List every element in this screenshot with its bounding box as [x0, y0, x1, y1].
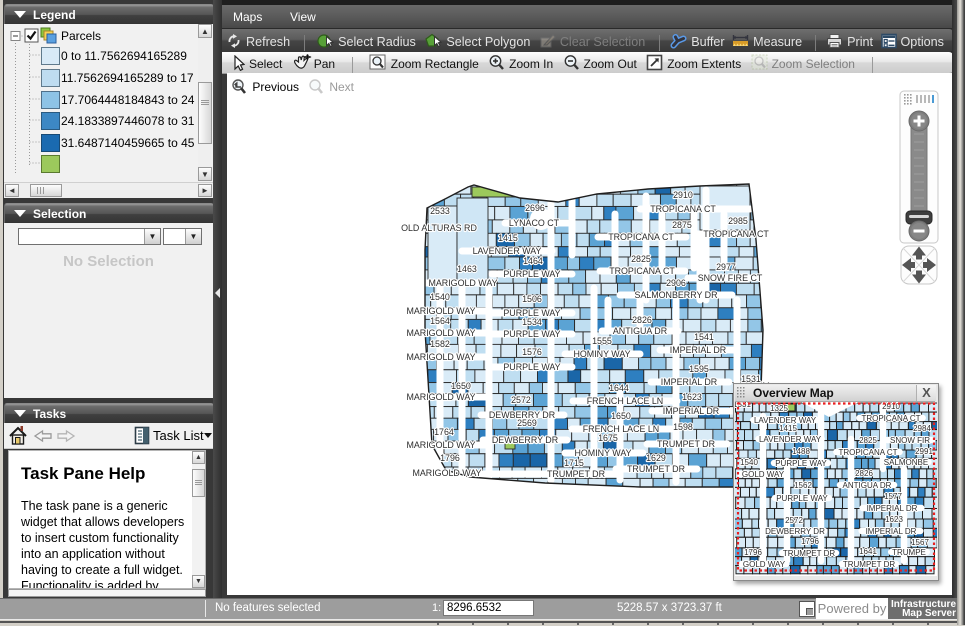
svg-text:IMPERIAL DR: IMPERIAL DR: [670, 345, 726, 355]
svg-text:1540: 1540: [740, 458, 758, 467]
svg-text:DEWBERRY DR: DEWBERRY DR: [765, 527, 825, 536]
svg-text:LYNACO CT: LYNACO CT: [509, 218, 560, 228]
svg-text:1796: 1796: [440, 453, 460, 463]
svg-text:TROPICANA CT: TROPICANA CT: [861, 414, 920, 423]
svg-text:2569: 2569: [517, 418, 537, 428]
svg-text:1564: 1564: [430, 316, 450, 326]
svg-text:ANTIGUA DR: ANTIGUA DR: [613, 326, 667, 336]
svg-text:MARIGOLD WAY: MARIGOLD WAY: [412, 468, 481, 478]
svg-text:HOMINY WAY: HOMINY WAY: [574, 448, 631, 458]
svg-text:1562: 1562: [794, 481, 812, 490]
svg-text:TRUMPET DR: TRUMPET DR: [843, 560, 896, 569]
svg-text:LAVENDER WAY: LAVENDER WAY: [473, 246, 542, 256]
svg-text:1488: 1488: [792, 447, 810, 456]
svg-text:1675: 1675: [598, 433, 618, 443]
svg-text:FRENCH LACE LN: FRENCH LACE LN: [583, 424, 659, 434]
svg-text:Task List: Task List: [153, 428, 204, 443]
svg-text:1540: 1540: [430, 292, 450, 302]
svg-text:LAVENDER WAY: LAVENDER WAY: [759, 435, 822, 444]
svg-text:2825: 2825: [859, 436, 877, 445]
svg-text:TROPICANA CT: TROPICANA CT: [703, 229, 769, 239]
svg-text:HOMINY WAY: HOMINY WAY: [573, 349, 630, 359]
svg-text:SNOW FIR: SNOW FIR: [890, 436, 930, 445]
svg-text:2825: 2825: [631, 254, 651, 264]
svg-text:2906: 2906: [666, 278, 686, 288]
svg-text:GOLD WAY: GOLD WAY: [743, 560, 786, 569]
svg-text:2826: 2826: [632, 315, 652, 325]
svg-text:2875: 2875: [672, 220, 692, 230]
svg-text:2985: 2985: [728, 216, 748, 226]
svg-text:1715: 1715: [564, 458, 584, 468]
svg-text:1650: 1650: [451, 381, 471, 391]
svg-text:1595: 1595: [689, 364, 709, 374]
svg-text:PURPLE WAY: PURPLE WAY: [503, 269, 560, 279]
svg-text:2533: 2533: [430, 206, 450, 216]
svg-text:2977: 2977: [716, 262, 736, 272]
svg-text:2984: 2984: [913, 424, 931, 433]
svg-text:1598: 1598: [673, 422, 693, 432]
svg-text:1541: 1541: [694, 332, 714, 342]
svg-text:PURPLE WAY: PURPLE WAY: [775, 459, 827, 468]
svg-text:MARIGOLD WAY: MARIGOLD WAY: [406, 306, 475, 316]
svg-text:TRUMPET DR: TRUMPET DR: [627, 464, 685, 474]
svg-text:IMPERIAL DR: IMPERIAL DR: [867, 504, 918, 513]
svg-text:1796: 1796: [801, 537, 819, 546]
svg-text:1534: 1534: [522, 317, 542, 327]
svg-text:OLD ALTURAS RD: OLD ALTURAS RD: [401, 223, 477, 233]
svg-text:2910: 2910: [673, 190, 693, 200]
svg-text:2572: 2572: [511, 395, 531, 405]
svg-text:PURPLE WAY: PURPLE WAY: [776, 494, 828, 503]
svg-text:1463: 1463: [457, 264, 477, 274]
svg-text:MARIGOLD WAY: MARIGOLD WAY: [428, 278, 497, 288]
svg-text:1325: 1325: [770, 404, 788, 413]
svg-text:DEWBERRY DR: DEWBERRY DR: [492, 435, 558, 445]
svg-text:2991: 2991: [915, 447, 933, 456]
svg-text:1650: 1650: [611, 411, 631, 421]
svg-text:TRUMPET DR: TRUMPET DR: [783, 549, 836, 558]
svg-text:MARIGOLD WAY: MARIGOLD WAY: [406, 328, 475, 338]
svg-text:1764: 1764: [434, 427, 454, 437]
svg-text:1464: 1464: [523, 256, 543, 266]
svg-text:IMPERIAL DR: IMPERIAL DR: [866, 527, 917, 536]
svg-text:1577: 1577: [884, 492, 902, 501]
svg-text:1506: 1506: [522, 294, 542, 304]
svg-text:TROPICANA CT: TROPICANA CT: [838, 448, 897, 457]
svg-text:1576: 1576: [522, 347, 542, 357]
svg-text:MARIGOLD WAY: MARIGOLD WAY: [406, 352, 475, 362]
svg-text:1623: 1623: [682, 392, 702, 402]
svg-text:TRUMPE: TRUMPE: [892, 548, 926, 557]
svg-text:1415: 1415: [779, 424, 797, 433]
svg-text:TROPICANA CT: TROPICANA CT: [609, 266, 675, 276]
svg-text:2826: 2826: [855, 469, 873, 478]
svg-text:1415: 1415: [498, 233, 518, 243]
svg-text:1641: 1641: [859, 547, 877, 556]
svg-text:MARIGOLD WAY: MARIGOLD WAY: [406, 392, 475, 402]
svg-text:IMPERIAL DR: IMPERIAL DR: [661, 377, 717, 387]
svg-text:TRUMPET DR: TRUMPET DR: [657, 439, 715, 449]
svg-text:MARIGOLD WAY: MARIGOLD WAY: [406, 440, 475, 450]
svg-text:FRENCH LACE LN: FRENCH LACE LN: [587, 396, 663, 406]
svg-text:SNOW FIRE CT: SNOW FIRE CT: [698, 273, 763, 283]
svg-text:GOLD WAY: GOLD WAY: [742, 470, 785, 479]
svg-text:1623: 1623: [885, 515, 903, 524]
svg-text:SALMONBERRY DR: SALMONBERRY DR: [634, 290, 717, 300]
svg-text:1582: 1582: [430, 339, 450, 349]
svg-text:1567: 1567: [911, 538, 929, 547]
svg-text:TROPICANA CT: TROPICANA CT: [650, 204, 716, 214]
svg-text:IMPERIAL DR: IMPERIAL DR: [663, 406, 719, 416]
svg-text:PURPLE WAY: PURPLE WAY: [503, 329, 560, 339]
svg-text:1555: 1555: [592, 336, 612, 346]
svg-text:TROPICANA CT: TROPICANA CT: [608, 232, 674, 242]
svg-text:1629: 1629: [646, 453, 666, 463]
svg-text:2696: 2696: [525, 203, 545, 213]
svg-text:TRUMPET DR: TRUMPET DR: [547, 469, 605, 479]
svg-text:PURPLE WAY: PURPLE WAY: [503, 362, 560, 372]
svg-text:ANTIGUA DR: ANTIGUA DR: [843, 481, 892, 490]
svg-text:2572: 2572: [785, 516, 803, 525]
svg-text:1644: 1644: [609, 383, 629, 393]
svg-text:SALMONBE: SALMONBE: [884, 458, 928, 467]
svg-text:1796: 1796: [744, 548, 762, 557]
